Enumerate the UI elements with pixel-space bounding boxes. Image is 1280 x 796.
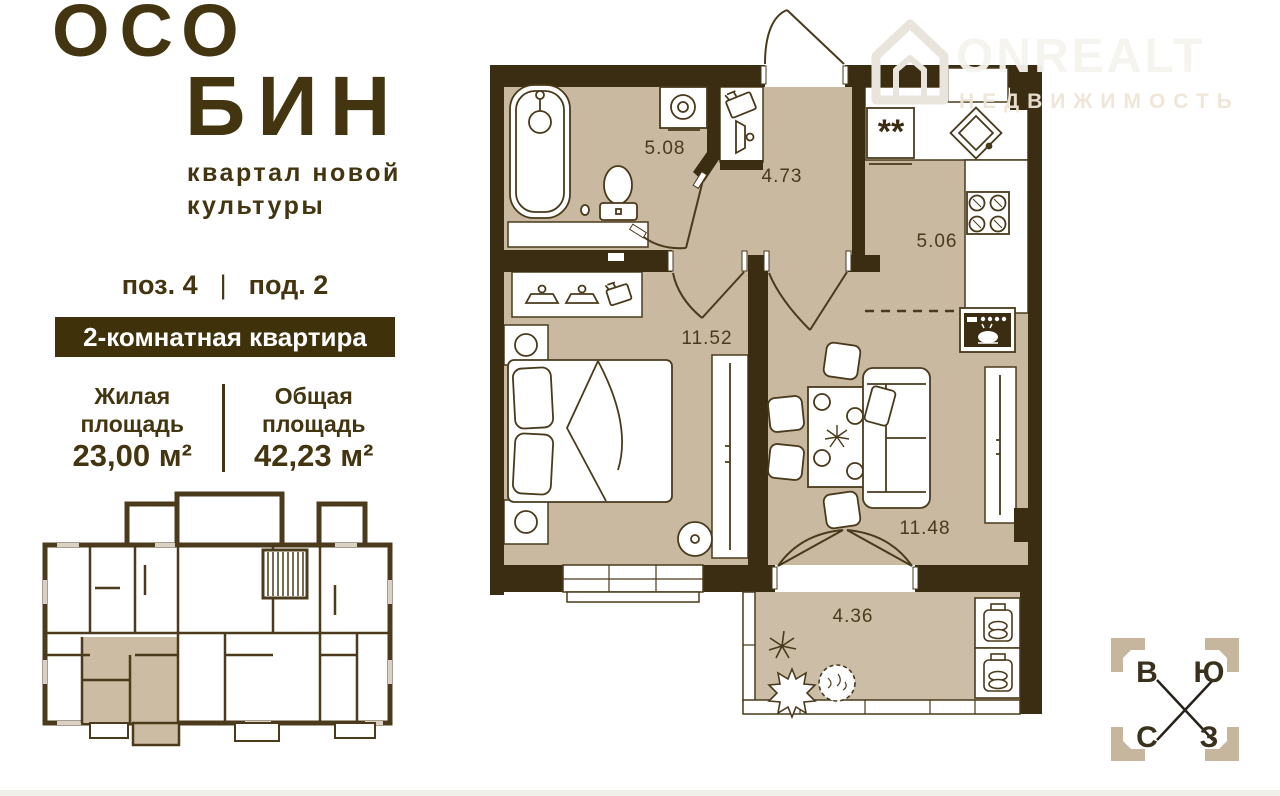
living-area-label: Жилая площадь bbox=[45, 382, 220, 438]
sofa-icon bbox=[863, 368, 930, 508]
pouf-icon bbox=[678, 522, 712, 556]
bathtub-icon bbox=[510, 85, 570, 218]
brand-title-line2: БИН bbox=[185, 58, 402, 155]
balcony-jar-shelf-top bbox=[975, 598, 1020, 648]
building-floor-mini-plan bbox=[35, 490, 400, 775]
balcony-glazing-left bbox=[743, 592, 755, 702]
fridge-freezer-symbol: ** bbox=[878, 113, 905, 151]
watermark-house-icon bbox=[876, 24, 944, 100]
flyer-canvas: ОСО БИН квартал новой культуры поз. 4|по… bbox=[0, 0, 1280, 796]
living-area-block: Жилая площадь 23,00 м² bbox=[45, 382, 220, 474]
position-divider: | bbox=[220, 270, 227, 300]
watermark-subtitle: НЕДВИЖИМОСТЬ bbox=[959, 90, 1240, 113]
apartment-type-badge: 2-комнатная квартира bbox=[55, 317, 395, 357]
room-area-label-kitchen: 5.06 bbox=[917, 231, 958, 252]
room-area-label-balcony: 4.36 bbox=[833, 606, 874, 627]
area-divider bbox=[222, 384, 225, 472]
position-label: поз. 4 bbox=[122, 270, 198, 300]
brand-tagline-line2: культуры bbox=[187, 190, 401, 223]
total-area-block: Общая площадь 42,23 м² bbox=[227, 382, 402, 474]
mini-plan-staircase bbox=[263, 550, 307, 598]
bottom-edge-strip bbox=[0, 790, 1280, 796]
compass-letter-south: Ю bbox=[1194, 656, 1225, 689]
bedroom-window-sill bbox=[567, 592, 699, 602]
room-area-label-hallway: 4.73 bbox=[762, 166, 803, 187]
room-area-label-bedroom: 11.52 bbox=[681, 328, 732, 349]
brand-tagline-line1: квартал новой bbox=[187, 157, 401, 190]
total-area-label: Общая площадь bbox=[227, 382, 402, 438]
compass-letter-west: З bbox=[1200, 721, 1219, 754]
entrance-label: под. 2 bbox=[249, 270, 329, 300]
nightstand-lamp-top bbox=[515, 334, 537, 356]
bathroom-vanity bbox=[508, 222, 648, 247]
compass-letter-north: С bbox=[1136, 721, 1158, 754]
living-area-value: 23,00 м² bbox=[45, 438, 220, 474]
total-area-value: 42,23 м² bbox=[227, 438, 402, 474]
position-entrance-line: поз. 4|под. 2 bbox=[55, 270, 395, 301]
washing-machine-icon bbox=[660, 87, 707, 130]
room-area-label-bathroom: 5.08 bbox=[645, 138, 686, 159]
wall-duct-notch bbox=[608, 253, 624, 261]
balcony-bush-icon bbox=[819, 665, 855, 701]
nightstand-lamp-bottom bbox=[515, 511, 537, 533]
entrance-door-icon bbox=[765, 10, 844, 64]
area-summary: Жилая площадь 23,00 м² Общая площадь 42,… bbox=[45, 382, 401, 474]
stove-icon bbox=[967, 192, 1009, 234]
oven-icon bbox=[960, 308, 1015, 352]
balcony-jar-shelf-bottom bbox=[975, 648, 1020, 698]
watermark-brand: ONREALT bbox=[956, 30, 1205, 83]
room-area-label-living: 11.48 bbox=[899, 518, 950, 539]
compass-letter-east: В bbox=[1136, 656, 1158, 689]
bed-icon bbox=[508, 360, 672, 502]
watermark: ONREALT НЕДВИЖИМОСТЬ bbox=[858, 8, 1258, 118]
kitchen-counter-right bbox=[965, 160, 1028, 313]
compass-rose: В Ю С З bbox=[1105, 632, 1245, 767]
brand-tagline: квартал новой культуры bbox=[187, 157, 401, 223]
mini-plan-highlighted-balcony bbox=[133, 723, 179, 745]
